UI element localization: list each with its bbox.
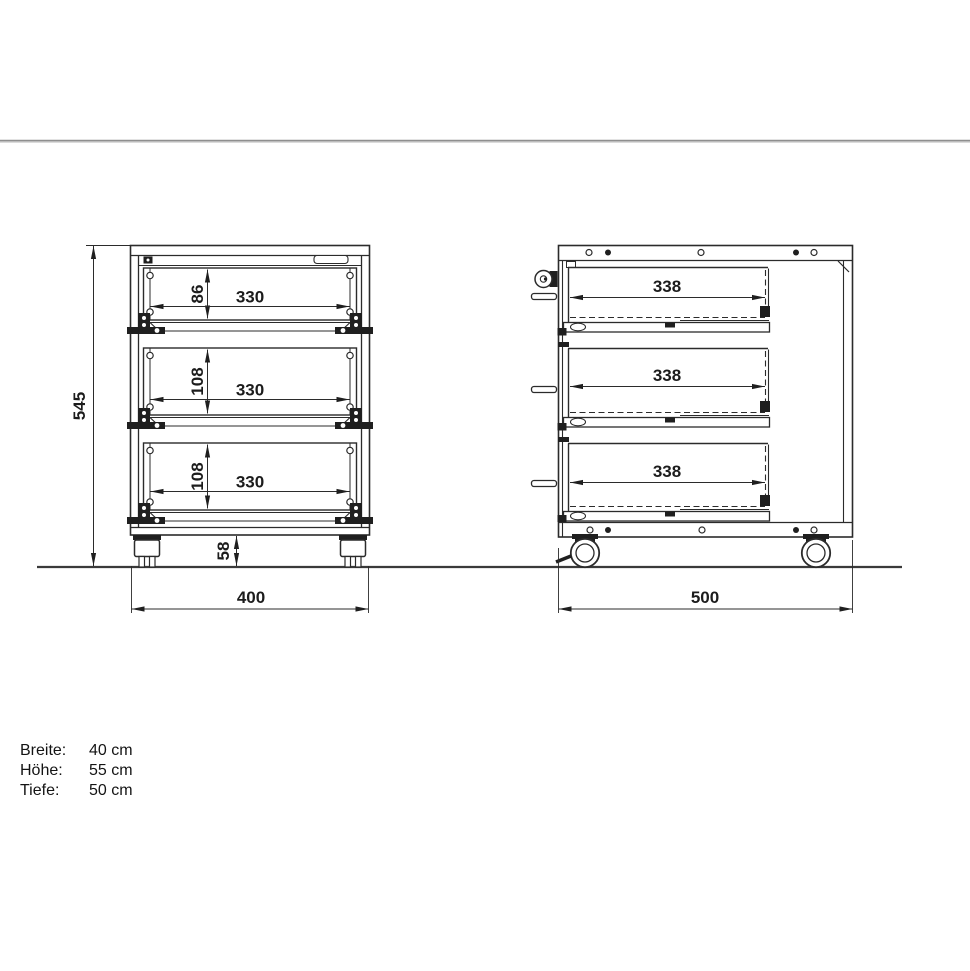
dim-label: 545 [70,392,89,420]
side-view: 338 338 [532,246,853,614]
side-caster-back [802,534,830,567]
top-divider-line [0,141,970,143]
spec-row-depth: Tiefe: 50 cm [20,781,133,801]
dim-label: 330 [236,288,264,307]
side-cabinet-outline [559,246,853,538]
spec-label: Höhe: [20,761,89,781]
dim-overall-width: 400 [132,566,369,613]
handle-drawer1 [532,294,557,300]
lock-recess [314,256,348,264]
front-caster-left [133,535,161,567]
dim-label: 330 [236,381,264,400]
dimensions-summary: Breite: 40 cm Höhe: 55 cm Tiefe: 50 cm [20,741,133,801]
front-caster-right [339,535,367,567]
side-caster-front [571,534,599,567]
spec-row-height: Höhe: 55 cm [20,761,133,781]
dim-label: 338 [653,462,681,481]
spec-row-width: Breite: 40 cm [20,741,133,761]
dim-label: 330 [236,473,264,492]
handle-drawer3 [532,481,557,487]
spec-label: Breite: [20,741,89,761]
dim-label: 500 [691,588,719,607]
dim-label: 338 [653,277,681,296]
dim-label: 86 [188,285,207,304]
dim-overall-height: 545 [70,246,130,567]
dim-label: 338 [653,366,681,385]
dim-label: 400 [237,588,265,607]
spec-value: 55 cm [89,761,133,781]
technical-drawing-page: 86 330 108 330 [0,0,970,971]
dim-label: 108 [188,367,207,395]
dim-caster-height: 58 [214,536,237,566]
dim-label: 108 [188,462,207,490]
spec-value: 40 cm [89,741,133,761]
handle-drawer2 [532,387,557,393]
spec-label: Tiefe: [20,781,89,801]
front-drawer-1: 86 330 [127,268,373,334]
drawing-svg: 86 330 108 330 [0,0,970,971]
spec-value: 50 cm [89,781,133,801]
front-view: 86 330 108 330 [70,246,373,614]
dim-label: 58 [214,542,233,561]
lock-cylinder [535,271,558,288]
